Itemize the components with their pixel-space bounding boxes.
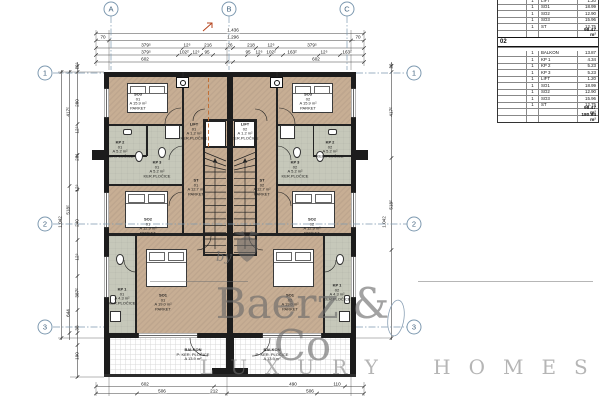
section-01-total: 98.47 m² xyxy=(577,31,598,37)
table-cell-qty: 1 xyxy=(526,18,538,24)
table-cell-name: ST xyxy=(538,24,577,30)
table-cell-qty: 1 xyxy=(526,57,538,63)
floorplan-canvas: 1.436701.29670379⁵12⁵2162621812⁵379⁵379⁵… xyxy=(0,0,600,400)
table-cell-value: 15.96 xyxy=(577,18,598,24)
area-table-section-01: 1 LIFT 1.20 1 SO1 18.99 1 SO2 12.90 1 SO… xyxy=(498,0,598,30)
table-cell-value: 18.99 xyxy=(577,5,598,11)
table-cell-qty: 1 xyxy=(526,0,538,4)
table-cell-value: 12.90 xyxy=(577,11,598,17)
table-cell-name: LIFT xyxy=(538,0,577,4)
table-cell-qty: 1 xyxy=(526,51,538,57)
table-cell-name: KP 2 xyxy=(538,64,577,70)
watermark-by: by xyxy=(216,250,232,265)
table-total-row: 98.47 m² xyxy=(498,30,598,37)
table-cell-value: 13.87 xyxy=(577,51,598,57)
table-cell-value: 12.90 xyxy=(577,90,598,96)
crest-icon xyxy=(234,231,260,262)
table-cell-name: SO1 xyxy=(538,5,577,11)
table-grand-total-row: 180.94 m² xyxy=(498,115,598,122)
section-marker xyxy=(203,23,212,148)
table-cell-qty: 1 xyxy=(526,96,538,102)
table-cell-name: SO3 xyxy=(538,18,577,24)
table-cell-qty: 1 xyxy=(526,83,538,89)
table-cell-value: 5.23 xyxy=(577,70,598,76)
table-cell-name: KP 3 xyxy=(538,70,577,76)
table-cell-qty: 1 xyxy=(526,90,538,96)
table-cell-value: 1.20 xyxy=(577,77,598,83)
grand-total: 180.94 m² xyxy=(577,116,598,122)
table-cell-name: SO1 xyxy=(538,83,577,89)
table-cell-value: 18.99 xyxy=(577,83,598,89)
table-cell-qty: 1 xyxy=(526,11,538,17)
table-cell-name: KP 1 xyxy=(538,57,577,63)
table-cell-qty: 1 xyxy=(526,103,538,109)
table-cell-value: 4.34 xyxy=(577,57,598,63)
table-cell-name: ST xyxy=(538,103,577,109)
table-cell-name: BALKON xyxy=(538,51,577,57)
watermark-tagline: LUXURY HOMES xyxy=(200,355,600,379)
table-cell-name: LIFT xyxy=(538,77,577,83)
table-cell-qty: 1 xyxy=(526,5,538,11)
table-cell-qty: 1 xyxy=(526,77,538,83)
table-cell-name: SO2 xyxy=(538,11,577,17)
table-cell-value: 1.20 xyxy=(577,0,598,4)
table-cell-value: 15.96 xyxy=(577,96,598,102)
area-table: 1 LIFT 1.20 1 SO1 18.99 1 SO2 12.90 1 SO… xyxy=(497,0,599,123)
area-table-section-02: 1 BALKON 13.87 1 KP 1 4.34 1 KP 2 5.23 1… xyxy=(498,51,598,109)
table-cell-qty: 1 xyxy=(526,24,538,30)
table-cell-name: SO2 xyxy=(538,90,577,96)
watermark-rule-right xyxy=(418,281,593,282)
table-cell-qty: 1 xyxy=(526,70,538,76)
table-cell-name: SO3 xyxy=(538,96,577,102)
table-cell-qty: 1 xyxy=(526,64,538,70)
table-cell-value: 5.23 xyxy=(577,64,598,70)
